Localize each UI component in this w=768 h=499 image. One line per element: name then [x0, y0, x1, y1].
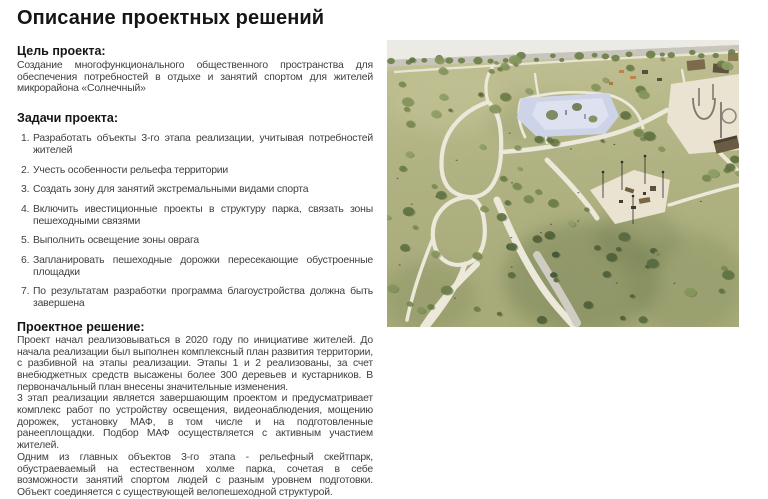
solution-paragraph: Проект начал реализовываться в 2020 году…: [17, 335, 373, 394]
tasks-heading: Задачи проекта:: [17, 111, 373, 125]
task-item: По результатам разработки программа благ…: [21, 286, 373, 309]
goal-heading: Цель проекта:: [17, 44, 373, 58]
pond: [517, 93, 619, 137]
tasks-list: Разработать объекты 3-го этапа реализаци…: [17, 133, 373, 310]
slide-page: { "page": { "title": "Описание проектных…: [0, 0, 768, 455]
task-item: Создать зону для занятий экстремальными …: [21, 184, 373, 196]
park-aerial-render: [387, 40, 739, 327]
task-item: Включить ивестиционные проекты в структу…: [21, 204, 373, 227]
task-item: Учесть особенности рельефа территории: [21, 165, 373, 177]
page-title: Описание проектных решений: [17, 6, 373, 30]
task-item: Разработать объекты 3-го этапа реализаци…: [21, 133, 373, 156]
solution-paragraph: Одним из главных объектов 3-го этапа - р…: [17, 452, 373, 499]
task-item: Запланировать пешеходные дорожки пересек…: [21, 255, 373, 278]
project-description-panel: Описание проектных решений Цель проекта:…: [17, 0, 373, 499]
goal-text: Создание многофункционального общественн…: [17, 60, 373, 95]
task-item: Выполнить освещение зоны оврага: [21, 235, 373, 247]
solution-heading: Проектное решение:: [17, 320, 373, 334]
solution-paragraph: 3 этап реализации является завершающим п…: [17, 393, 373, 452]
solution-text: Проект начал реализовываться в 2020 году…: [17, 335, 373, 499]
